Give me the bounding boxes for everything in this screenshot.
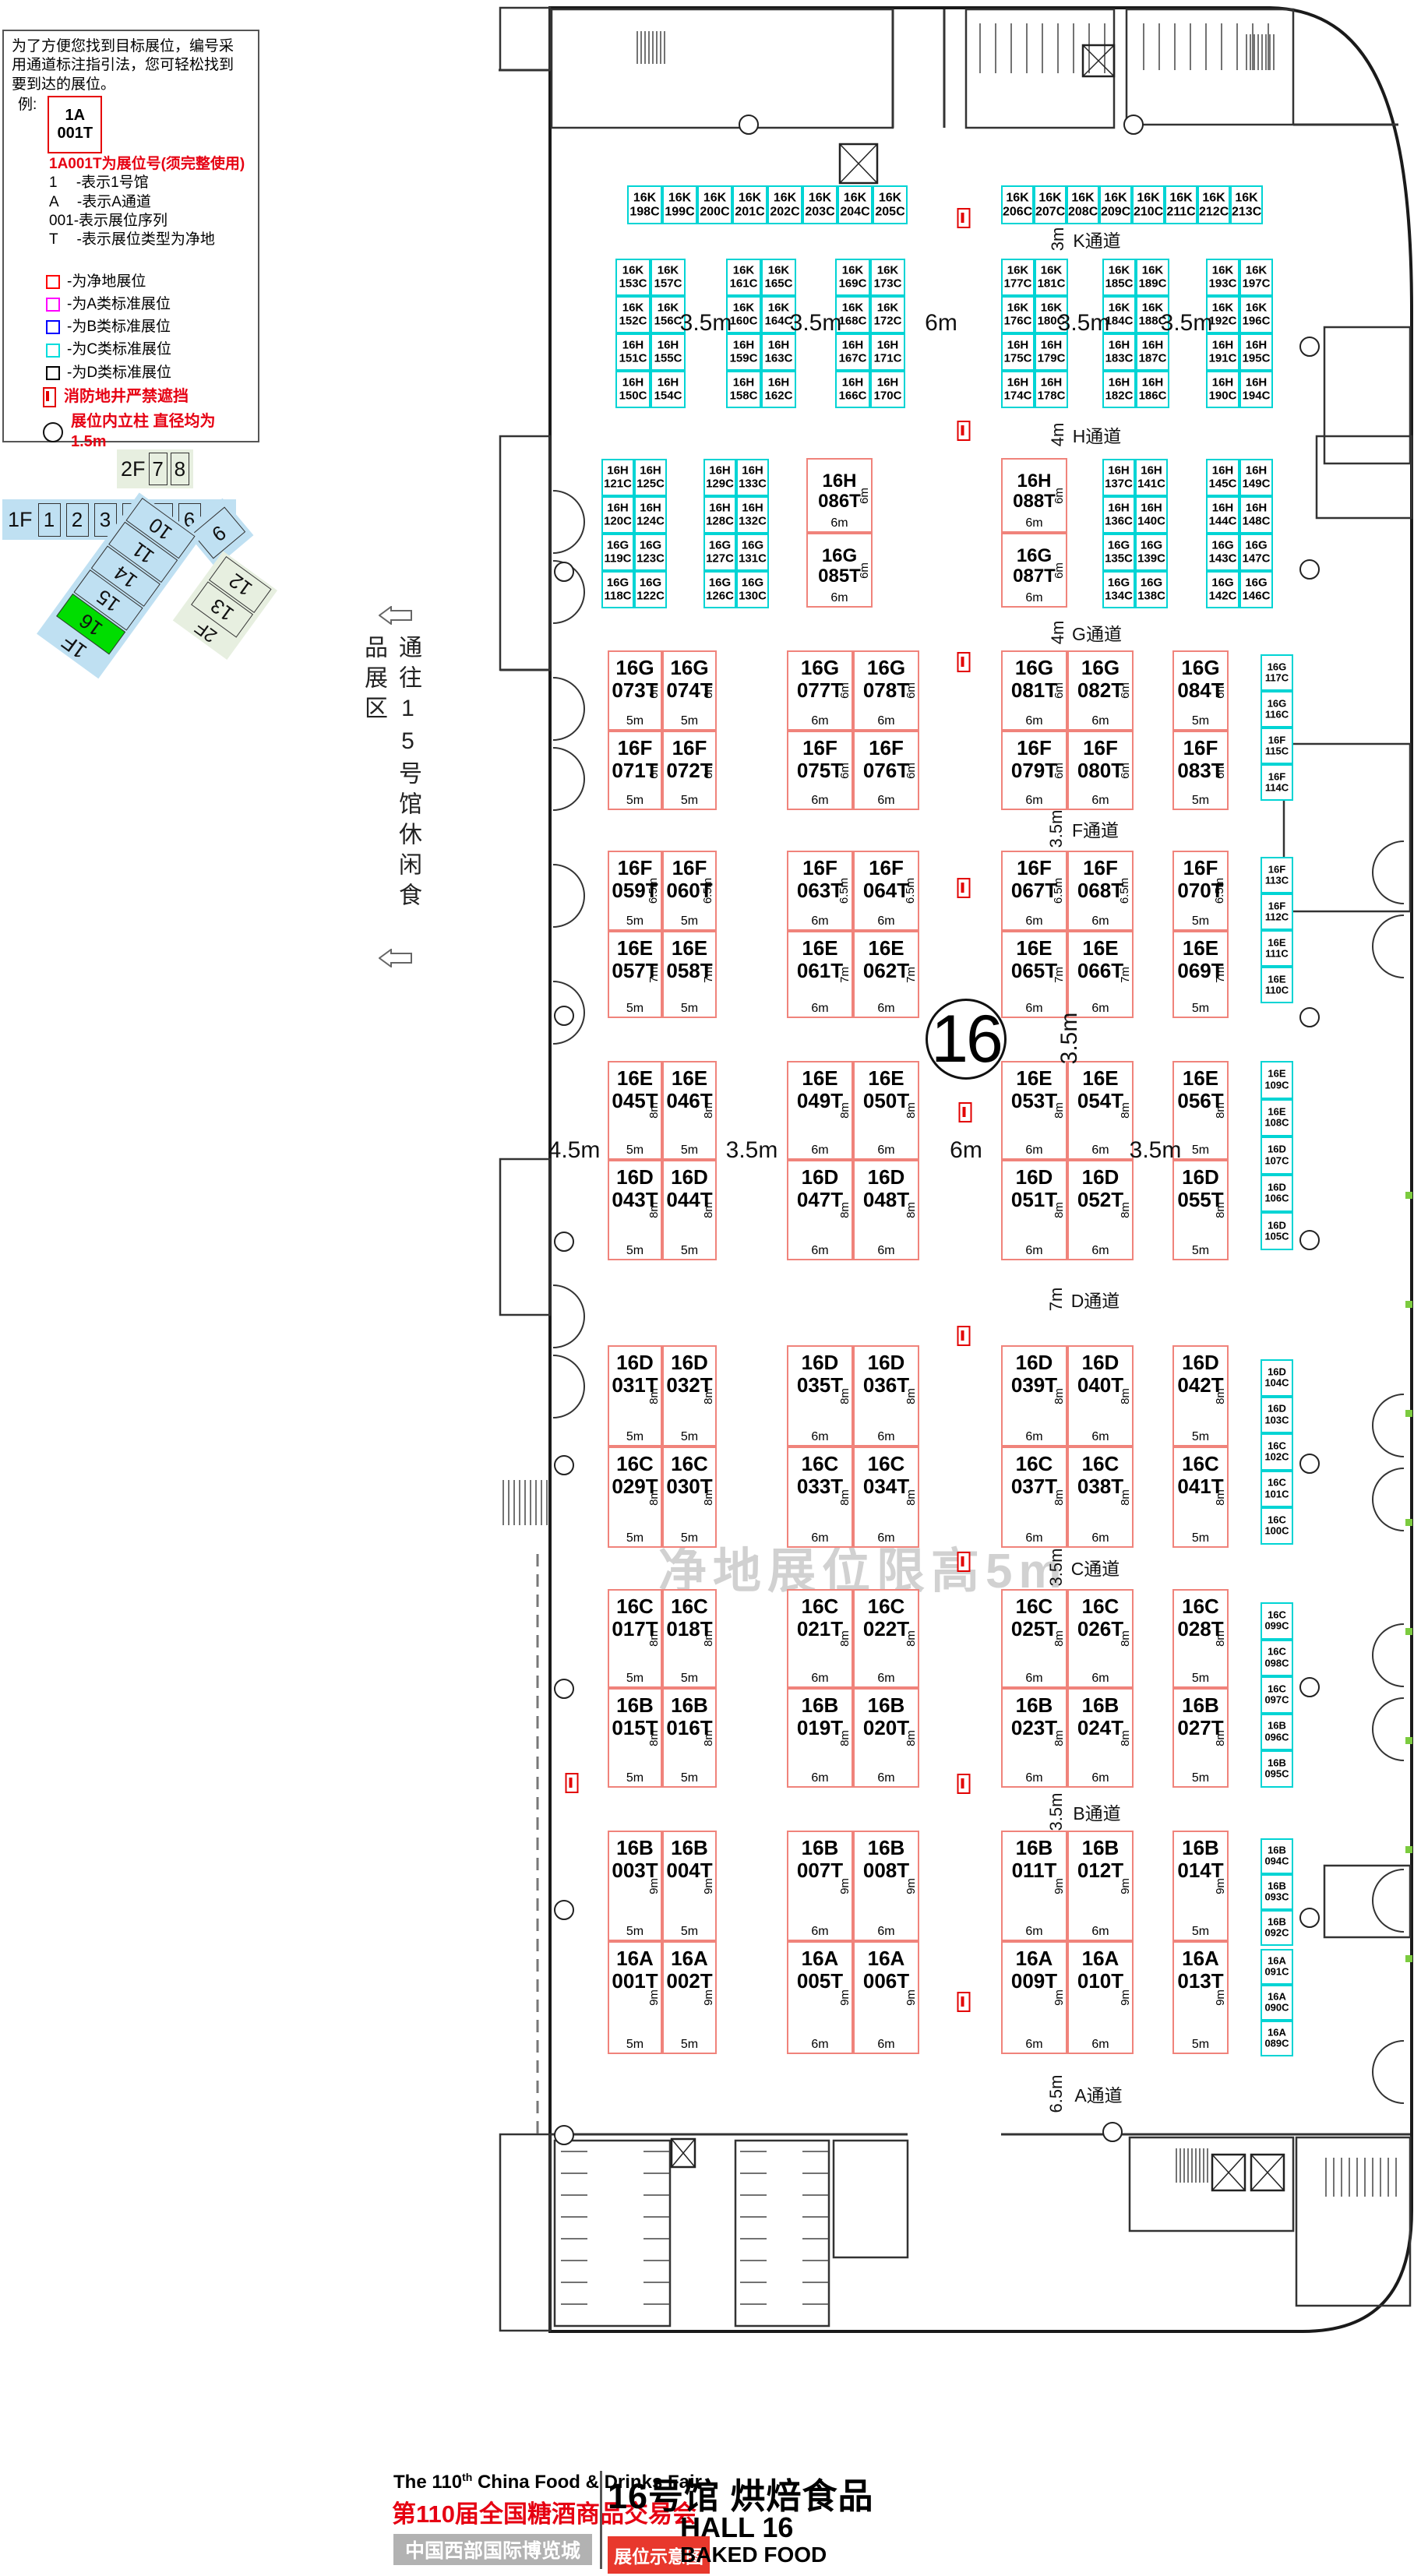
legend-fire-note: 消防地井严禁遮挡 [64, 387, 189, 407]
booth-16F-114C: 16F114C [1261, 764, 1293, 801]
booth-16H-120C: 16H120C [601, 496, 634, 534]
pillar-icon [1299, 1454, 1320, 1474]
booth-width-label: 5m [609, 794, 661, 808]
booth-16F-083T: 16F083T6m5m [1172, 731, 1229, 810]
booth-width-label: 6m [788, 1144, 852, 1158]
booth-16C-037T: 16C037T8m6m [1001, 1447, 1067, 1548]
booth-width-label: 5m [1174, 2038, 1227, 2052]
booth-16G-131C: 16G131C [736, 534, 769, 571]
booth-16D-052T: 16D052T8m6m [1067, 1160, 1134, 1260]
booth-depth-label: 9m [1051, 1832, 1067, 1940]
booth-16A-089C: 16A089C [1261, 2021, 1293, 2056]
booth-16H-194C: 16H194C [1239, 371, 1273, 408]
booth-width-label: 6m [1069, 1531, 1132, 1545]
booth-16A-010T: 16A010T9m6m [1067, 1941, 1134, 2054]
aisle-width-label: 3.5m [1046, 810, 1067, 848]
booth-16K-176C: 16K176C [1001, 296, 1035, 333]
booth-16B-092C: 16B092C [1261, 1910, 1293, 1946]
booth-width-label: 6m [788, 1925, 852, 1939]
pillar-icon [739, 115, 759, 135]
booth-16B-016T: 16B016T8m5m [662, 1688, 717, 1788]
booth-16K-173C: 16K173C [870, 259, 905, 296]
booth-16F-060T: 16F060T6.5m5m [662, 851, 717, 931]
booth-width-label: 5m [664, 1672, 715, 1686]
booth-16G-143C: 16G143C [1206, 534, 1239, 571]
booth-width-label: 6m [1069, 1771, 1132, 1785]
aisle-label-K通道: K通道 [1073, 226, 1120, 252]
booth-width-label: 6m [855, 1144, 918, 1158]
booth-16F-064T: 16F064T6.5m6m [853, 851, 919, 931]
booth-16B-096C: 16B096C [1261, 1714, 1293, 1751]
booth-16G-126C: 16G126C [703, 571, 736, 608]
booth-16D-103C: 16D103C [1261, 1397, 1293, 1434]
booth-16B-004T: 16B004T9m5m [662, 1831, 717, 1941]
fire-hydrant-icon [566, 1773, 579, 1793]
aisle-width-label: 4.5m [548, 1137, 601, 1164]
booth-16D-043T: 16D043T8m5m [608, 1160, 662, 1260]
booth-16H-136C: 16H136C [1102, 496, 1135, 534]
booth-width-label: 5m [1174, 1531, 1227, 1545]
category-en: BAKED FOOD [680, 2543, 827, 2567]
booth-16C-041T: 16C041T8m5m [1172, 1447, 1229, 1548]
aisle-width-label: 3.5m [1130, 1137, 1182, 1164]
booth-width-label: 6m [1003, 1672, 1066, 1686]
booth-width-label: 6m [1003, 714, 1066, 728]
booth-width-label: 6m [788, 794, 852, 808]
booth-16C-017T: 16C017T8m5m [608, 1589, 662, 1688]
door-arc [1373, 1624, 1404, 1655]
booth-16B-024T: 16B024T8m6m [1067, 1688, 1134, 1788]
booth-16B-008T: 16B008T9m6m [853, 1831, 919, 1941]
booth-16D-106C: 16D106C [1261, 1175, 1293, 1213]
booth-depth-label: 9m [903, 1832, 919, 1940]
booth-width-label: 5m [664, 1002, 715, 1016]
wall-tick [1405, 1846, 1412, 1853]
booth-depth-label: 9m [1051, 1943, 1067, 2053]
fire-hydrant-icon [957, 652, 971, 672]
swatch-d-class [46, 366, 60, 380]
booth-16C-026T: 16C026T8m6m [1067, 1589, 1134, 1688]
booth-width-label: 5m [1174, 1430, 1227, 1444]
booth-width-label: 5m [664, 2038, 715, 2052]
legend-example-note: 1A001T为展位号(须完整使用) [49, 155, 250, 174]
booth-16B-019T: 16B019T8m6m [787, 1688, 853, 1788]
booth-width-label: 5m [664, 1144, 715, 1158]
booth-16B-023T: 16B023T8m6m [1001, 1688, 1067, 1788]
booth-width-label: 6m [788, 1771, 852, 1785]
booth-16F-063T: 16F063T6.5m6m [787, 851, 853, 931]
booth-16E-111C: 16E111C [1261, 930, 1293, 967]
aisle-label-C通道: C通道 [1071, 1554, 1120, 1580]
wall-tick [1405, 1192, 1412, 1199]
booth-16H-159C: 16H159C [726, 333, 761, 371]
fire-hydrant-icon [957, 1552, 971, 1572]
booth-16G-134C: 16G134C [1102, 571, 1135, 608]
booth-16F-113C: 16F113C [1261, 857, 1293, 893]
booth-16K-206C: 16K206C [1001, 185, 1034, 224]
booth-16H-141C: 16H141C [1135, 459, 1168, 496]
pillar-icon [1299, 337, 1320, 357]
booth-16D-032T: 16D032T8m5m [662, 1345, 717, 1447]
booth-width-label: 5m [1174, 794, 1227, 808]
door-arc [1373, 841, 1404, 872]
booth-16A-002T: 16A002T9m5m [662, 1941, 717, 2054]
booth-16G-123C: 16G123C [634, 534, 667, 571]
pillar-icon [554, 1006, 574, 1026]
booth-depth-label: 9m [1117, 1943, 1133, 2053]
booth-width-label: 6m [1069, 914, 1132, 929]
booth-16D-048T: 16D048T8m6m [853, 1160, 919, 1260]
booth-16G-081T: 16G081T6m6m [1001, 650, 1067, 731]
door-arc [553, 522, 584, 553]
aisle-width-label: 4m [1048, 621, 1068, 645]
booth-16C-029T: 16C029T8m5m [608, 1447, 662, 1548]
booth-width-label: 6m [855, 914, 918, 929]
aisle-width-label: 3m [1048, 227, 1068, 252]
booth-16H-183C: 16H183C [1102, 333, 1136, 371]
booth-16D-040T: 16D040T8m6m [1067, 1345, 1134, 1447]
booth-16H-149C: 16H149C [1239, 459, 1273, 496]
aisle-width-label: 3.5m [1056, 1013, 1083, 1065]
legend-code-line: 001-表示展位序列 [49, 212, 250, 231]
booth-width-label: 5m [609, 1771, 661, 1785]
floorplan-page: 为了方便您找到目标展位，编号采 用通道标注指引法，您可轻松找到 要到达的展位。 … [0, 0, 1421, 2576]
booth-16G-116C: 16G116C [1261, 691, 1293, 728]
booth-depth-label: 9m [700, 1943, 716, 2053]
booth-depth-label: 9m [700, 1832, 716, 1940]
booth-16D-042T: 16D042T8m5m [1172, 1345, 1229, 1447]
booth-16K-204C: 16K204C [837, 185, 873, 224]
booth-16K-189C: 16K189C [1136, 259, 1169, 296]
legend-code-line: A -表示A通道 [49, 193, 250, 212]
legend-type-label: -为C类标准展位 [67, 340, 171, 359]
fire-hydrant-icon [957, 421, 971, 441]
booth-width-label: 6m [1069, 794, 1132, 808]
door-arc [1373, 1698, 1404, 1729]
aisle-label-D通道: D通道 [1071, 1286, 1120, 1313]
booth-width-label: 6m [1069, 1925, 1132, 1939]
pillar-icon [1299, 559, 1320, 580]
booth-width-label: 6m [1003, 794, 1066, 808]
booth-width-label: 5m [609, 914, 661, 929]
booth-16D-039T: 16D039T8m6m [1001, 1345, 1067, 1447]
booth-width-label: 6m [855, 1771, 918, 1785]
left-arrow-icon [379, 606, 413, 625]
booth-width-label: 6m [1003, 1244, 1066, 1258]
booth-16C-022T: 16C022T8m6m [853, 1589, 919, 1688]
wall-tick [1405, 1519, 1412, 1526]
booth-16F-070T: 16F070T6.5m5m [1172, 851, 1229, 931]
door-arc [553, 779, 584, 810]
booth-16F-115C: 16F115C [1261, 728, 1293, 764]
booth-16B-093C: 16B093C [1261, 1874, 1293, 1910]
booth-width-label: 5m [609, 1002, 661, 1016]
aisle-width-label: 3.5m [1046, 1793, 1067, 1831]
corridor-note: 通往15号馆休闲食品展区 [392, 635, 425, 939]
booth-16G-122C: 16G122C [634, 571, 667, 608]
booth-width-label: 5m [664, 1771, 715, 1785]
booth-16E-053T: 16E053T8m6m [1001, 1061, 1067, 1160]
booth-16H-148C: 16H148C [1239, 496, 1273, 534]
booth-16D-055T: 16D055T8m5m [1172, 1160, 1229, 1260]
booth-16B-094C: 16B094C [1261, 1838, 1293, 1874]
booth-16H-182C: 16H182C [1102, 371, 1136, 408]
booth-16G-142C: 16G142C [1206, 571, 1239, 608]
booth-width-label: 6m [1003, 1771, 1066, 1785]
booth-16H-129C: 16H129C [703, 459, 736, 496]
booth-16D-036T: 16D036T8m6m [853, 1345, 919, 1447]
left-arrow-icon [379, 949, 413, 967]
booth-16H-167C: 16H167C [835, 333, 870, 371]
booth-16K-157C: 16K157C [651, 259, 686, 296]
booth-width-label: 6m [788, 914, 852, 929]
door-arc [553, 592, 584, 623]
booth-width-label: 6m [1069, 1672, 1132, 1686]
booth-16B-007T: 16B007T9m6m [787, 1831, 853, 1941]
booth-width-label: 6m [788, 1244, 852, 1258]
swatch-b-class [46, 320, 60, 334]
pillar-icon [1299, 1230, 1320, 1250]
booth-16K-181C: 16K181C [1035, 259, 1068, 296]
minimap-hall-8: 8 [171, 453, 189, 485]
booth-16K-152C: 16K152C [615, 296, 651, 333]
aisle-label-A通道: A通道 [1074, 2081, 1122, 2107]
aisle-width-label: 7m [1046, 1288, 1067, 1312]
booth-width-label: 6m [808, 516, 871, 530]
booth-16F-075T: 16F075T6m6m [787, 731, 853, 810]
booth-16H-132C: 16H132C [736, 496, 769, 534]
booth-16E-046T: 16E046T8m5m [662, 1061, 717, 1160]
booth-16D-051T: 16D051T8m6m [1001, 1160, 1067, 1260]
booth-16E-058T: 16E058T7m5m [662, 931, 717, 1018]
aisle-width-label: 4m [1048, 423, 1068, 447]
booth-width-label: 6m [788, 1430, 852, 1444]
booth-width-label: 5m [609, 1531, 661, 1545]
booth-width-label: 5m [609, 1672, 661, 1686]
booth-width-label: 6m [788, 1672, 852, 1686]
booth-16D-107C: 16D107C [1261, 1136, 1293, 1175]
booth-width-label: 6m [855, 1672, 918, 1686]
booth-16F-072T: 16F072T6m5m [662, 731, 717, 810]
booth-16K-211C: 16K211C [1165, 185, 1197, 224]
booth-16C-028T: 16C028T8m5m [1172, 1589, 1229, 1688]
booth-width-label: 5m [664, 914, 715, 929]
door-arc [1373, 1869, 1404, 1901]
pillar-icon [554, 2125, 574, 2145]
booth-16H-140C: 16H140C [1135, 496, 1168, 534]
booth-16C-101C: 16C101C [1261, 1471, 1293, 1508]
door-arc [553, 1316, 584, 1348]
pillar-icon [554, 1900, 574, 1920]
legend-type-label: -为D类标准展位 [67, 364, 171, 382]
aisle-label-G通道: G通道 [1072, 619, 1122, 646]
booth-16C-025T: 16C025T8m6m [1001, 1589, 1067, 1688]
booth-16E-062T: 16E062T7m6m [853, 931, 919, 1018]
booth-16D-105C: 16D105C [1261, 1212, 1293, 1250]
booth-16G-074T: 16G074T6m5m [662, 650, 717, 731]
booth-16K-199C: 16K199C [662, 185, 697, 224]
booth-16H-186C: 16H186C [1136, 371, 1169, 408]
booth-depth-label: 9m [837, 1832, 852, 1940]
booth-16H-170C: 16H170C [870, 371, 905, 408]
door-arc [553, 709, 584, 740]
booth-16G-135C: 16G135C [1102, 534, 1135, 571]
example-booth-line2: 001T [57, 125, 93, 143]
pillar-icon [1299, 1677, 1320, 1697]
booth-16H-158C: 16H158C [726, 371, 761, 408]
booth-16H-166C: 16H166C [835, 371, 870, 408]
booth-16C-102C: 16C102C [1261, 1433, 1293, 1471]
door-arc [1373, 2072, 1404, 2103]
footer-divider [600, 2471, 602, 2569]
door-arc [1373, 946, 1404, 978]
legend-type-label: -为净地展位 [67, 273, 146, 291]
booth-16G-078T: 16G078T6m6m [853, 650, 919, 731]
booth-width-label: 5m [1174, 1771, 1227, 1785]
booth-16H-088T: 16H088T6m6m [1001, 458, 1067, 533]
booth-16H-144C: 16H144C [1206, 496, 1239, 534]
booth-16B-011T: 16B011T9m6m [1001, 1831, 1067, 1941]
booth-16E-066T: 16E066T7m6m [1067, 931, 1134, 1018]
booth-16C-034T: 16C034T8m6m [853, 1447, 919, 1548]
door-arc [1373, 1468, 1404, 1499]
booth-16E-057T: 16E057T7m5m [608, 931, 662, 1018]
booth-16H-190C: 16H190C [1206, 371, 1239, 408]
aisle-label-B通道: B通道 [1073, 1799, 1120, 1825]
booth-width-label: 6m [788, 1531, 852, 1545]
booth-16F-068T: 16F068T6.5m6m [1067, 851, 1134, 931]
booth-16H-187C: 16H187C [1136, 333, 1169, 371]
booth-16G-146C: 16G146C [1239, 571, 1273, 608]
booth-width-label: 6m [1069, 1430, 1132, 1444]
door-arc [553, 748, 584, 779]
door-arc [1373, 872, 1404, 904]
booth-16A-001T: 16A001T9m5m [608, 1941, 662, 2054]
door-arc [1373, 1499, 1404, 1531]
booth-16H-178C: 16H178C [1035, 371, 1068, 408]
booth-16G-119C: 16G119C [601, 534, 634, 571]
booth-16D-047T: 16D047T8m6m [787, 1160, 853, 1260]
booth-width-label: 5m [1174, 1244, 1227, 1258]
booth-16C-018T: 16C018T8m5m [662, 1589, 717, 1688]
legend-intro-line: 用通道标注指引法，您可轻松找到 [12, 56, 250, 75]
booth-width-label: 6m [788, 714, 852, 728]
legend-code-line: 1 -表示1号馆 [49, 174, 250, 192]
aisle-label-F通道: F通道 [1072, 816, 1119, 842]
booth-16G-084T: 16G084T6m5m [1172, 650, 1229, 731]
booth-16A-090C: 16A090C [1261, 1985, 1293, 2021]
booth-16E-045T: 16E045T8m5m [608, 1061, 662, 1160]
booth-width-label: 5m [664, 714, 715, 728]
minimap-floor-label: 1F [8, 508, 33, 532]
booth-width-label: 6m [855, 1244, 918, 1258]
booth-16H-125C: 16H125C [634, 459, 667, 496]
booth-width-label: 6m [1003, 1531, 1066, 1545]
example-booth-line1: 1A [65, 107, 85, 125]
booth-16F-080T: 16F080T6m6m [1067, 731, 1134, 810]
booth-width-label: 5m [609, 2038, 661, 2052]
booth-width-label: 6m [855, 1531, 918, 1545]
wall-tick [1405, 1737, 1412, 1744]
door-arc [553, 896, 584, 927]
swatch-t-class [46, 275, 60, 289]
legend-column-note: 展位内立柱 直径均为1.5m [71, 412, 250, 452]
legend-example-label: 例: [18, 96, 37, 115]
booth-width-label: 6m [1003, 914, 1066, 929]
door-arc [1373, 915, 1404, 946]
booth-16E-065T: 16E065T7m6m [1001, 931, 1067, 1018]
booth-depth-label: 9m [837, 1943, 852, 2053]
booth-width-label: 5m [609, 1925, 661, 1939]
booth-width-label: 6m [1003, 1430, 1066, 1444]
pillar-icon [1102, 2122, 1123, 2142]
door-arc [553, 678, 584, 709]
booth-width-label: 5m [664, 1925, 715, 1939]
booth-16E-110C: 16E110C [1261, 967, 1293, 1003]
booth-16K-201C: 16K201C [732, 185, 767, 224]
booth-width-label: 6m [788, 1002, 852, 1016]
booth-16K-203C: 16K203C [802, 185, 837, 224]
door-arc [553, 1387, 584, 1418]
wall-tick [1405, 1301, 1412, 1308]
booth-16G-147C: 16G147C [1239, 534, 1273, 571]
booth-16H-163C: 16H163C [761, 333, 796, 371]
booth-16B-014T: 16B014T9m5m [1172, 1831, 1229, 1941]
booth-16H-174C: 16H174C [1001, 371, 1035, 408]
booth-16C-097C: 16C097C [1261, 1676, 1293, 1714]
fire-hydrant-icon [43, 387, 56, 407]
legend-intro-line: 要到达的展位。 [12, 76, 250, 94]
booth-16G-087T: 16G087T6m6m [1001, 533, 1067, 608]
booth-width-label: 6m [1003, 1925, 1066, 1939]
door-arc [553, 865, 584, 896]
venue-bar: 中国西部国际博览城 [393, 2534, 592, 2565]
door-arc [1373, 1425, 1404, 1457]
booth-width-label: 6m [1003, 516, 1066, 530]
booth-depth-label: 9m [1212, 1943, 1228, 2053]
booth-width-label: 5m [609, 714, 661, 728]
booth-16F-112C: 16F112C [1261, 893, 1293, 930]
booth-width-label: 6m [1069, 2038, 1132, 2052]
aisle-width-label: 3.5m [790, 310, 842, 337]
booth-depth-label: 9m [1117, 1832, 1133, 1940]
booth-width-label: 5m [664, 794, 715, 808]
pillar-icon [1299, 1908, 1320, 1928]
booth-16H-191C: 16H191C [1206, 333, 1239, 371]
booth-16K-197C: 16K197C [1239, 259, 1273, 296]
door-arc [1373, 2041, 1404, 2072]
booth-16F-071T: 16F071T6m5m [608, 731, 662, 810]
booth-16A-013T: 16A013T9m5m [1172, 1941, 1229, 2054]
booth-16E-069T: 16E069T7m5m [1172, 931, 1229, 1018]
aisle-width-label: 6m [950, 1137, 982, 1164]
booth-16C-099C: 16C099C [1261, 1602, 1293, 1640]
booth-16B-003T: 16B003T9m5m [608, 1831, 662, 1941]
booth-width-label: 5m [664, 1244, 715, 1258]
booth-width-label: 6m [855, 1925, 918, 1939]
booth-16C-038T: 16C038T8m6m [1067, 1447, 1134, 1548]
booth-16C-033T: 16C033T8m6m [787, 1447, 853, 1548]
booth-16H-154C: 16H154C [651, 371, 686, 408]
aisle-width-label: 3.5m [1046, 1549, 1067, 1587]
booth-width-label: 6m [1069, 1144, 1132, 1158]
pillar-icon [554, 1679, 574, 1699]
booth-16K-172C: 16K172C [870, 296, 905, 333]
booth-width-label: 6m [855, 1430, 918, 1444]
booth-width-label: 6m [855, 1002, 918, 1016]
booth-width-label: 5m [609, 1144, 661, 1158]
booth-16K-185C: 16K185C [1102, 259, 1136, 296]
